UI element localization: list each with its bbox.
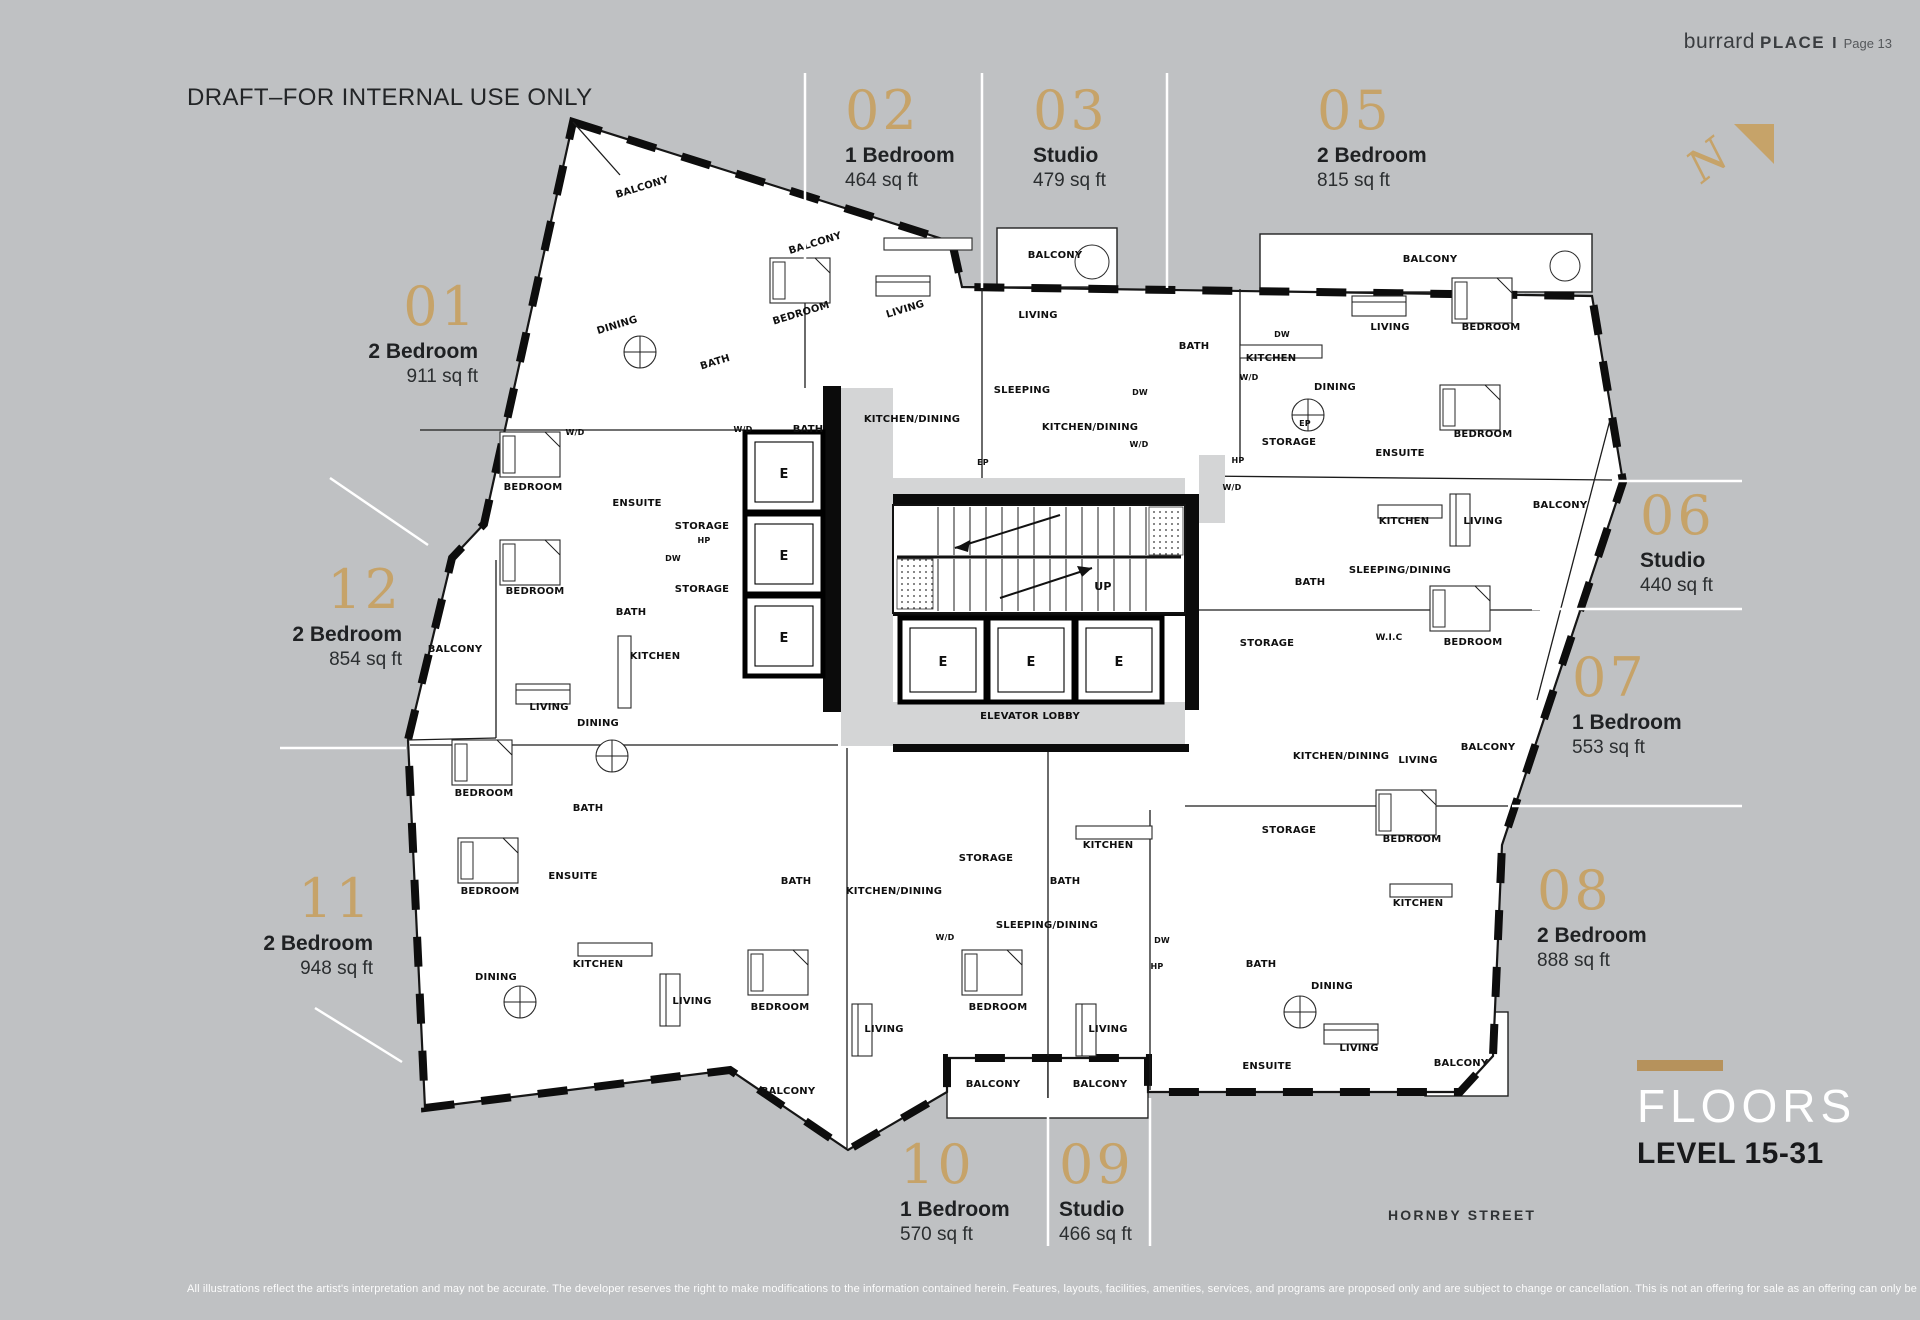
room-label: BALCONY xyxy=(1403,254,1458,265)
room-label: BEDROOM xyxy=(506,586,565,597)
room-label: LIVING xyxy=(529,702,568,713)
room-label: W/D xyxy=(734,425,753,434)
room-label: W/D xyxy=(1130,440,1149,449)
room-label: BEDROOM xyxy=(455,788,514,799)
unit-label-03: 03 Studio 479 sq ft xyxy=(1033,84,1108,191)
brand-separator: I xyxy=(1832,35,1836,53)
room-label: BATH xyxy=(1295,577,1326,588)
room-label: BALCONY xyxy=(1073,1079,1128,1090)
room-label: E xyxy=(1026,655,1035,670)
room-label: BATH xyxy=(1179,341,1210,352)
unit-type: 2 Bedroom xyxy=(1537,925,1647,947)
room-label: W/D xyxy=(566,428,585,437)
room-label: W/D xyxy=(1223,483,1242,492)
unit-number: 07 xyxy=(1572,651,1682,705)
room-label: ELEVATOR LOBBY xyxy=(980,711,1080,722)
unit-area: 570 sq ft xyxy=(900,1225,1010,1245)
room-label: KITCHEN xyxy=(573,959,624,970)
room-label: KITCHEN/DINING xyxy=(846,886,942,897)
room-label: UP xyxy=(1094,580,1111,593)
unit-area: 553 sq ft xyxy=(1572,738,1682,758)
room-label: HP xyxy=(1151,962,1164,971)
room-label: W/D xyxy=(1240,373,1259,382)
room-label: STORAGE xyxy=(1240,638,1294,649)
room-label: EP xyxy=(977,458,989,467)
floors-block: FLOORS LEVEL 15-31 xyxy=(1637,1060,1856,1171)
room-label: DW xyxy=(665,554,681,563)
room-label: BATH xyxy=(1246,959,1277,970)
room-label: BATH xyxy=(616,607,647,618)
unit-type: 2 Bedroom xyxy=(1317,145,1427,167)
unit-label-06: 06 Studio 440 sq ft xyxy=(1640,489,1715,596)
room-label: BALCONY xyxy=(1533,500,1588,511)
page-number: Page 13 xyxy=(1844,36,1892,51)
room-label: LIVING xyxy=(1088,1024,1127,1035)
unit-number: 06 xyxy=(1640,489,1715,543)
room-label: BALCONY xyxy=(761,1086,816,1097)
north-letter: N xyxy=(1677,128,1741,193)
unit-number: 11 xyxy=(263,872,373,926)
unit-area: 440 sq ft xyxy=(1640,576,1715,596)
room-label: SLEEPING/DINING xyxy=(996,920,1098,931)
room-label: BATH xyxy=(1050,876,1081,887)
room-label: SLEEPING xyxy=(994,385,1050,396)
room-label: E xyxy=(779,549,788,564)
room-label: KITCHEN/DINING xyxy=(1042,422,1138,433)
room-label: BALCONY xyxy=(428,644,483,655)
street-label: HORNBY STREET xyxy=(1388,1207,1536,1223)
unit-number: 05 xyxy=(1317,84,1427,138)
unit-type: Studio xyxy=(1059,1199,1134,1221)
room-label: HP xyxy=(698,536,711,545)
room-label: BATH xyxy=(793,424,824,435)
room-label: LIVING xyxy=(1339,1043,1378,1054)
unit-label-11: 11 2 Bedroom 948 sq ft xyxy=(263,872,373,979)
room-label: ENSUITE xyxy=(1375,448,1424,459)
room-label: BALCONY xyxy=(966,1079,1021,1090)
unit-number: 12 xyxy=(292,563,402,617)
room-label: DW xyxy=(1274,330,1290,339)
room-label: ENSUITE xyxy=(612,498,661,509)
room-label: KITCHEN xyxy=(630,651,681,662)
room-label: E xyxy=(779,631,788,646)
unit-label-12: 12 2 Bedroom 854 sq ft xyxy=(292,563,402,670)
unit-number: 02 xyxy=(845,84,955,138)
unit-type: Studio xyxy=(1640,550,1715,572)
room-label: E xyxy=(938,655,947,670)
unit-number: 01 xyxy=(368,280,478,334)
room-label: BALCONY xyxy=(1434,1058,1489,1069)
room-label: SLEEPING/DINING xyxy=(1349,565,1451,576)
room-label: STORAGE xyxy=(1262,437,1316,448)
room-label: E xyxy=(779,467,788,482)
stair-core xyxy=(893,505,1185,613)
unit-type: 2 Bedroom xyxy=(368,341,478,363)
room-label: BALCONY xyxy=(1461,742,1516,753)
unit-label-01: 01 2 Bedroom 911 sq ft xyxy=(368,280,478,387)
room-label: KITCHEN xyxy=(1246,353,1297,364)
room-label: LIVING xyxy=(1463,516,1502,527)
room-label: KITCHEN xyxy=(1379,516,1430,527)
unit-label-07: 07 1 Bedroom 553 sq ft xyxy=(1572,651,1682,758)
unit-area: 948 sq ft xyxy=(263,959,373,979)
room-label: BEDROOM xyxy=(1462,322,1521,333)
room-label: STORAGE xyxy=(959,853,1013,864)
room-label: KITCHEN xyxy=(1083,840,1134,851)
room-label: E xyxy=(1114,655,1123,670)
draft-notice: DRAFT–FOR INTERNAL USE ONLY xyxy=(187,84,593,112)
room-label: DINING xyxy=(475,972,517,983)
room-label: EP xyxy=(1299,419,1311,428)
room-label: BALCONY xyxy=(1028,250,1083,261)
room-label: BATH xyxy=(781,876,812,887)
unit-area: 464 sq ft xyxy=(845,171,955,191)
room-label: ENSUITE xyxy=(1242,1061,1291,1072)
floors-level-range: LEVEL 15-31 xyxy=(1637,1137,1856,1171)
room-label: DW xyxy=(1154,936,1170,945)
unit-area: 815 sq ft xyxy=(1317,171,1427,191)
unit-number: 09 xyxy=(1059,1138,1134,1192)
disclaimer-text: All illustrations reflect the artist's i… xyxy=(187,1283,1920,1295)
room-label: LIVING xyxy=(864,1024,903,1035)
room-label: BATH xyxy=(573,803,604,814)
unit-label-10: 10 1 Bedroom 570 sq ft xyxy=(900,1138,1010,1245)
room-label: STORAGE xyxy=(675,521,729,532)
unit-number: 10 xyxy=(900,1138,1010,1192)
unit-area: 911 sq ft xyxy=(368,367,478,387)
room-label: BEDROOM xyxy=(969,1002,1028,1013)
room-label: DINING xyxy=(1314,382,1356,393)
unit-number: 03 xyxy=(1033,84,1108,138)
room-label: BEDROOM xyxy=(751,1002,810,1013)
gold-bar xyxy=(1637,1060,1723,1071)
room-label: BEDROOM xyxy=(504,482,563,493)
room-label: LIVING xyxy=(672,996,711,1007)
unit-type: 1 Bedroom xyxy=(845,145,955,167)
unit-area: 479 sq ft xyxy=(1033,171,1108,191)
room-label: STORAGE xyxy=(1262,825,1316,836)
floors-title: FLOORS xyxy=(1637,1083,1856,1129)
north-arrow-icon: N xyxy=(1677,124,1774,193)
unit-type: 1 Bedroom xyxy=(900,1199,1010,1221)
unit-label-02: 02 1 Bedroom 464 sq ft xyxy=(845,84,955,191)
unit-type: 2 Bedroom xyxy=(292,624,402,646)
room-label: DINING xyxy=(577,718,619,729)
room-label: BEDROOM xyxy=(461,886,520,897)
room-label: W/D xyxy=(936,933,955,942)
unit-area: 854 sq ft xyxy=(292,650,402,670)
room-label: KITCHEN/DINING xyxy=(864,414,960,425)
brochure-page: { "page": { "brand": {"light": "burrard"… xyxy=(0,0,1920,1320)
room-label: STORAGE xyxy=(675,584,729,595)
room-label: DINING xyxy=(1311,981,1353,992)
room-label: HP xyxy=(1232,456,1245,465)
room-label: BEDROOM xyxy=(1383,834,1442,845)
room-label: DW xyxy=(1132,388,1148,397)
brand-name-bold: PLACE xyxy=(1760,33,1825,53)
unit-label-05: 05 2 Bedroom 815 sq ft xyxy=(1317,84,1427,191)
room-label: ENSUITE xyxy=(548,871,597,882)
room-label: LIVING xyxy=(1370,322,1409,333)
unit-label-08: 08 2 Bedroom 888 sq ft xyxy=(1537,864,1647,971)
room-label: W.I.C xyxy=(1376,633,1403,643)
brand-name-light: burrard xyxy=(1684,30,1755,54)
room-label: LIVING xyxy=(1398,755,1437,766)
unit-area: 888 sq ft xyxy=(1537,951,1647,971)
room-label: KITCHEN/DINING xyxy=(1293,751,1389,762)
room-label: KITCHEN xyxy=(1393,898,1444,909)
unit-type: Studio xyxy=(1033,145,1108,167)
unit-area: 466 sq ft xyxy=(1059,1225,1134,1245)
room-label: LIVING xyxy=(1018,310,1057,321)
room-label: BEDROOM xyxy=(1454,429,1513,440)
unit-number: 08 xyxy=(1537,864,1647,918)
unit-label-09: 09 Studio 466 sq ft xyxy=(1059,1138,1134,1245)
brand-logo: burrard PLACE I Page 13 xyxy=(1684,30,1892,54)
unit-type: 2 Bedroom xyxy=(263,933,373,955)
room-label: BEDROOM xyxy=(1444,637,1503,648)
unit-type: 1 Bedroom xyxy=(1572,712,1682,734)
